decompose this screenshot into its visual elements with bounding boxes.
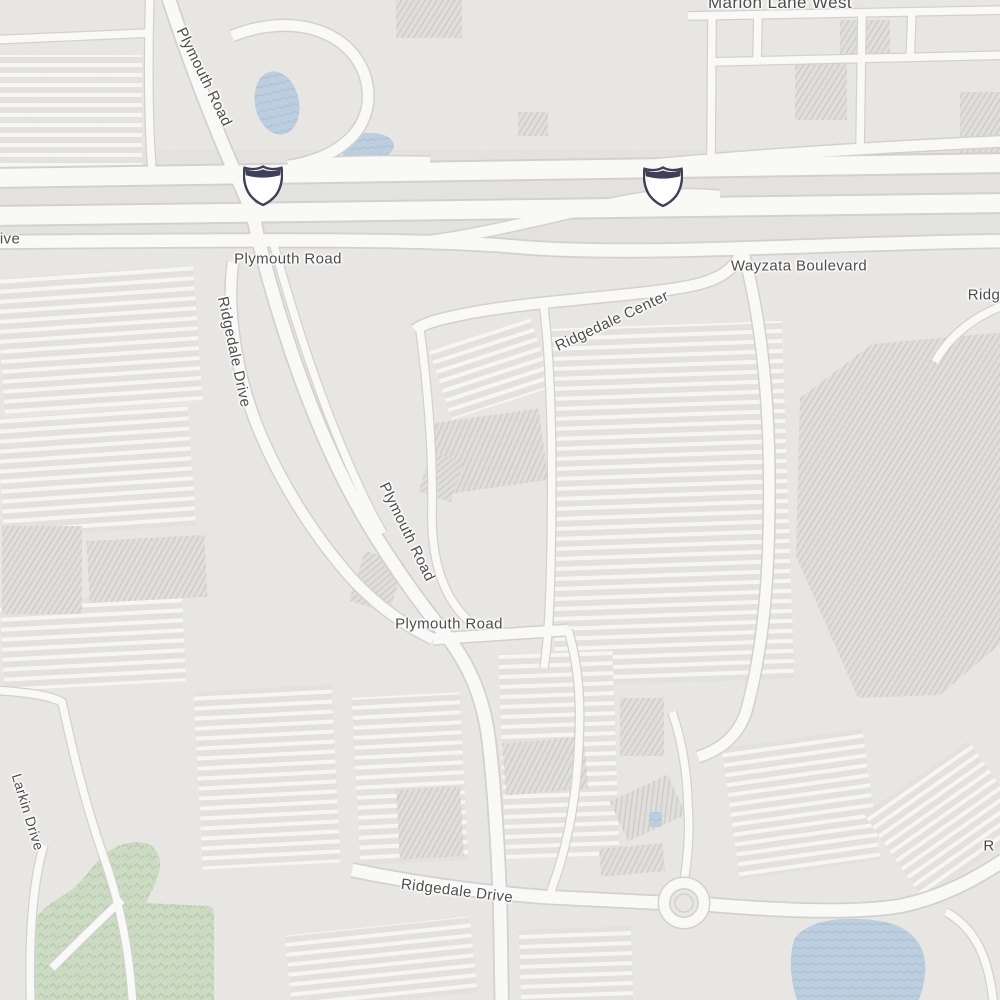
map-canvas[interactable]: Marion Lane WestPlymouth RoadPlymouth Ro… [0, 0, 1000, 1000]
paper-grain-overlay [0, 0, 1000, 1000]
basemap-svg [0, 0, 1000, 1000]
